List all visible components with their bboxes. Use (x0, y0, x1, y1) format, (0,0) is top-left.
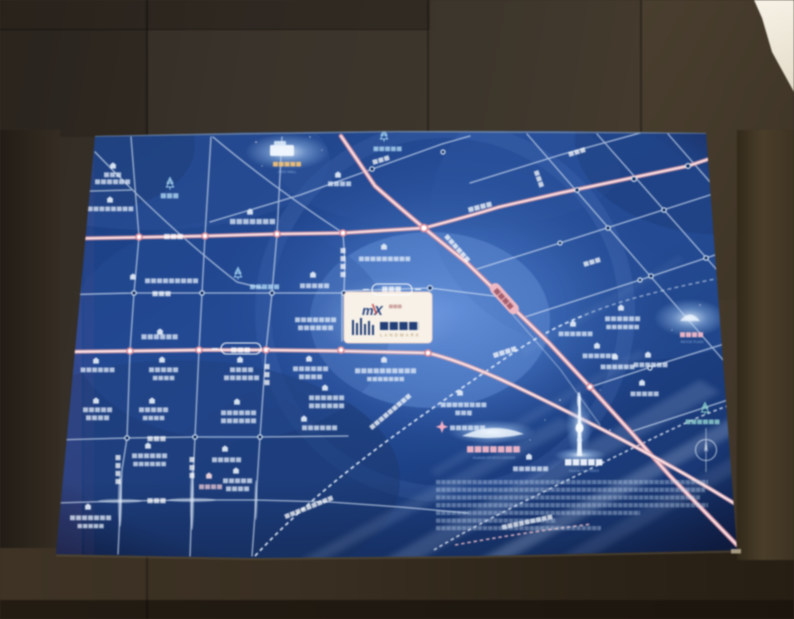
svg-text:WUYUE PLAZA: WUYUE PLAZA (681, 340, 705, 344)
svg-text:Huai'an TV TOWER: Huai'an TV TOWER (569, 469, 600, 473)
svg-text:LANDMARK: LANDMARK (380, 333, 421, 338)
svg-text:HUAIAN SPORTS CENTER: HUAIAN SPORTS CENTER (473, 456, 516, 460)
svg-text:m: m (362, 303, 374, 318)
svg-text:JINDI MALL: JINDI MALL (278, 170, 297, 174)
